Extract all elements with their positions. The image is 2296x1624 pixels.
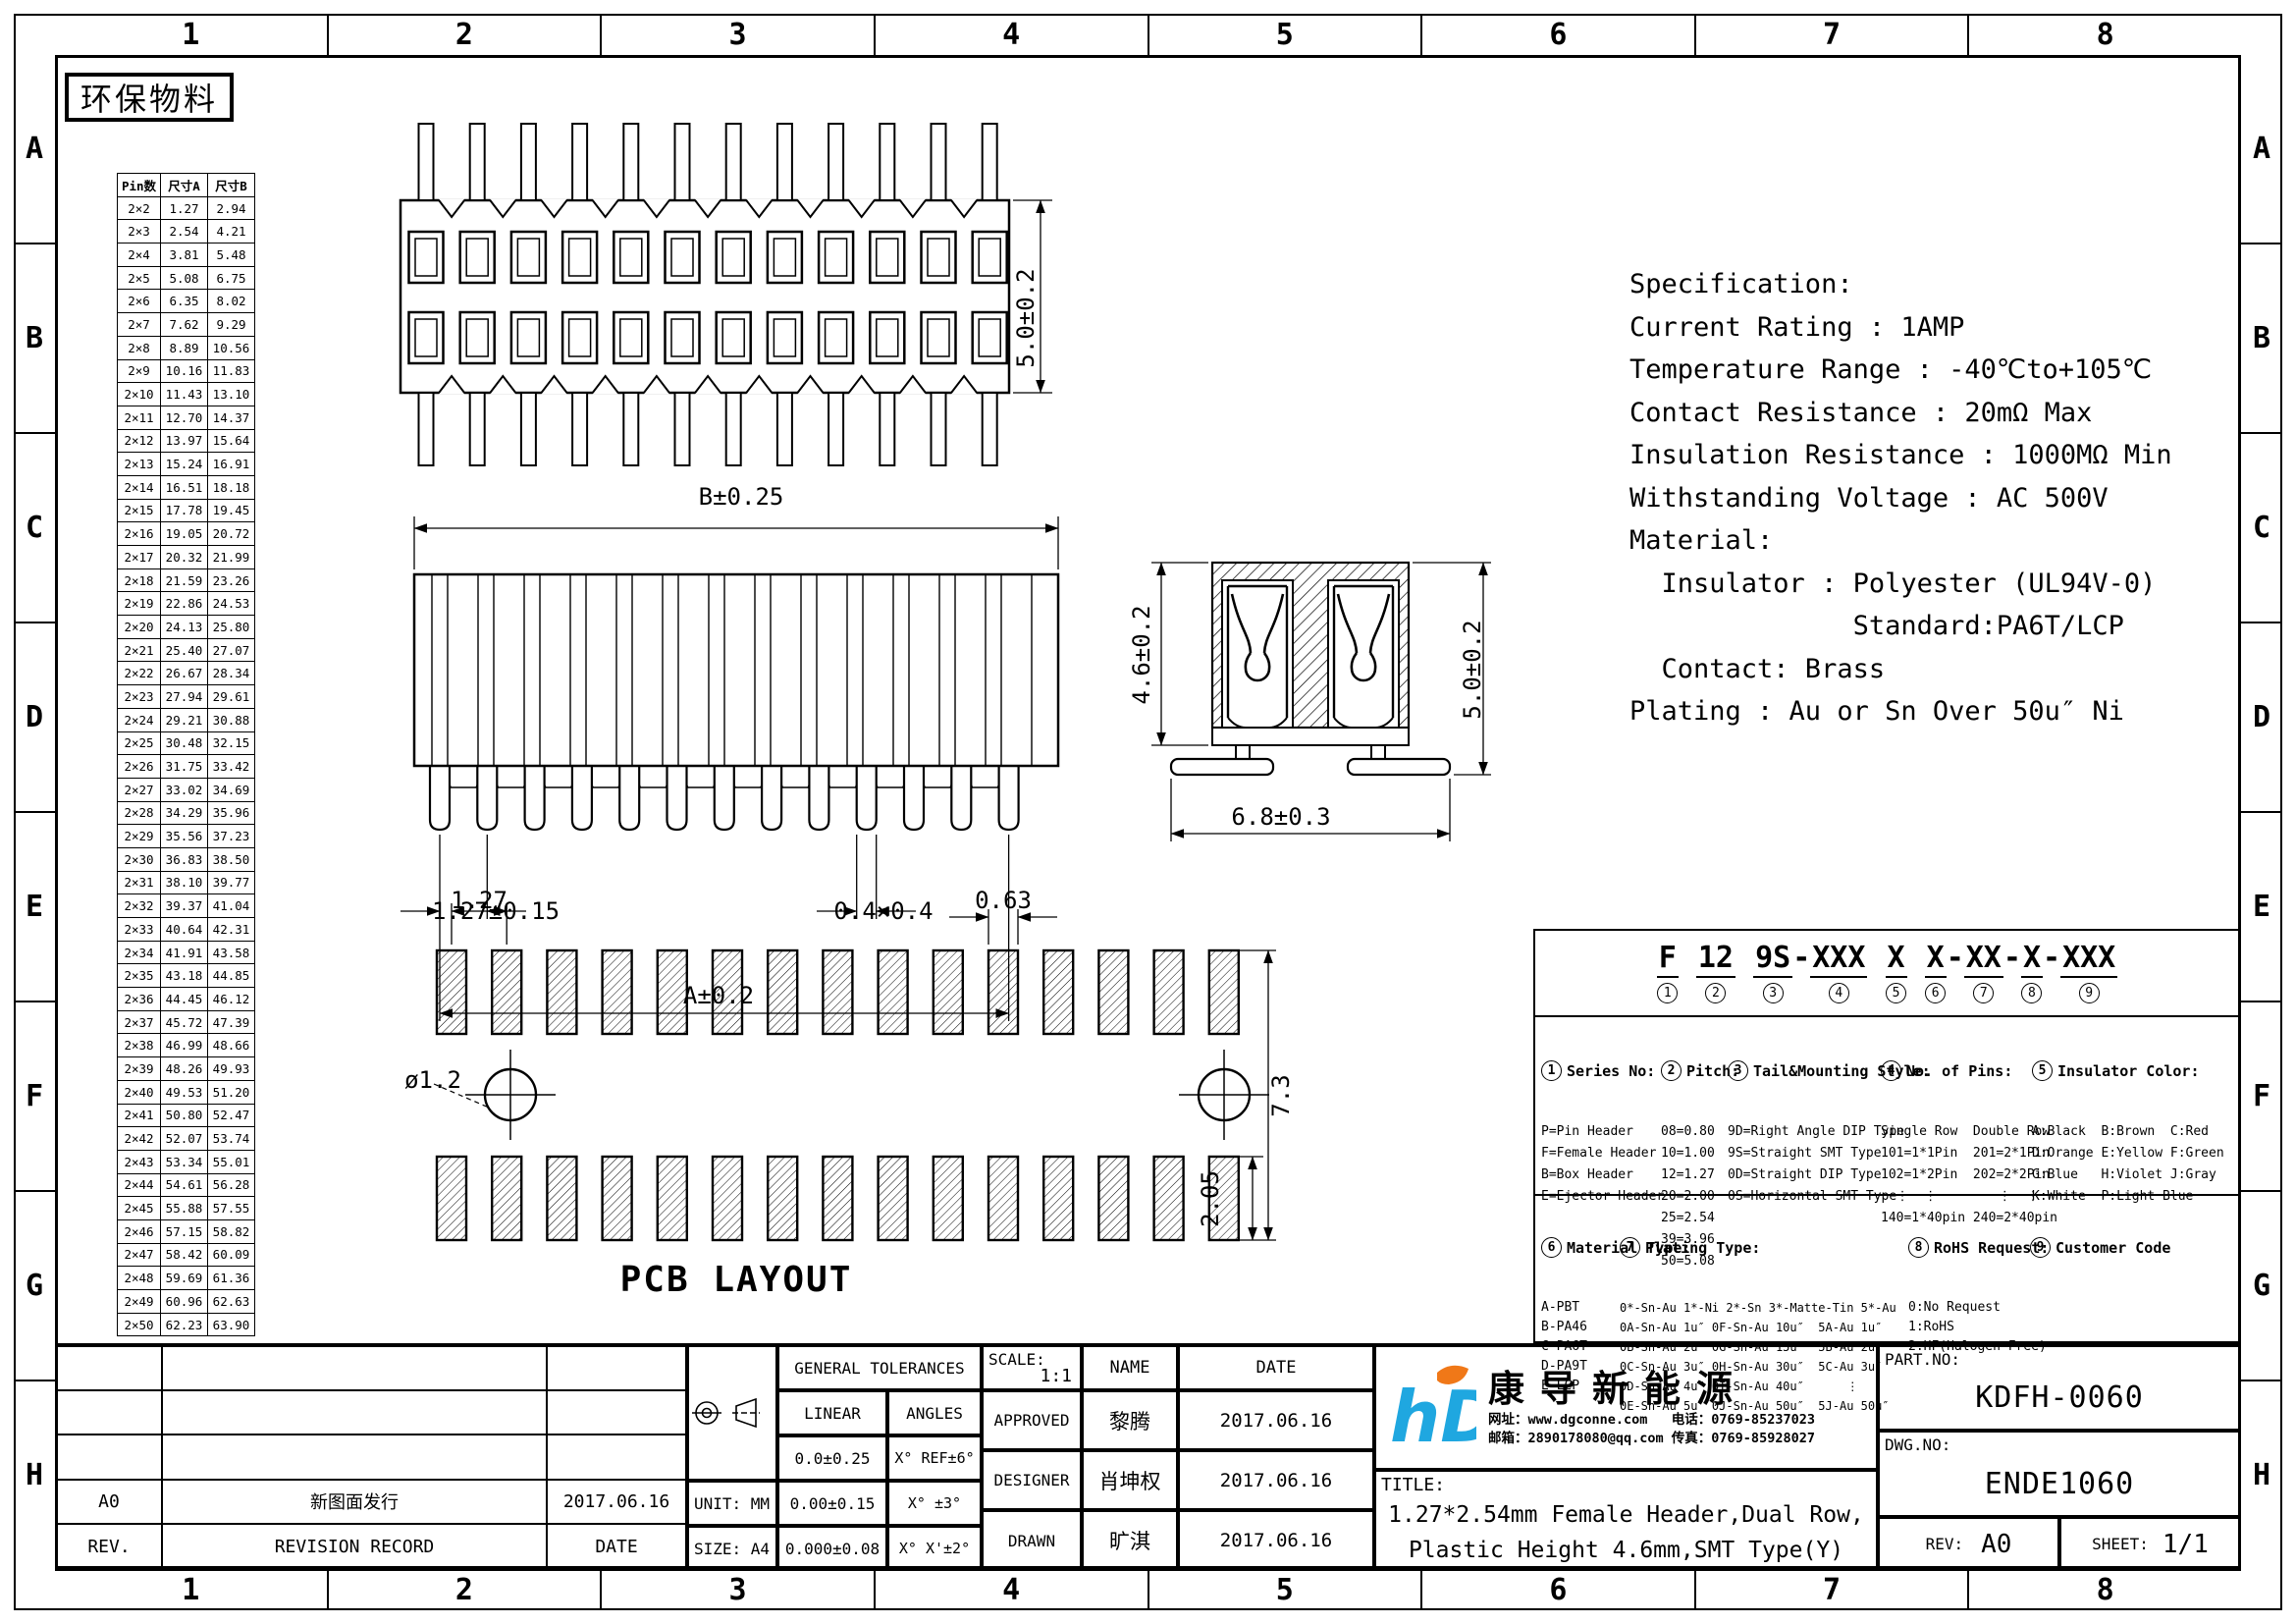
zone-label-H: H bbox=[14, 1380, 55, 1569]
table-cell: 62.23 bbox=[161, 1313, 208, 1336]
unit-cell: UNIT: MM bbox=[687, 1481, 777, 1526]
circled-number: 1 bbox=[1657, 983, 1678, 1003]
code-segment: XXX9 bbox=[2060, 941, 2117, 1003]
table-cell: 56.28 bbox=[208, 1173, 255, 1197]
table-cell: 2×48 bbox=[118, 1267, 161, 1290]
table-cell: 2×17 bbox=[118, 546, 161, 569]
code-segment: X6 bbox=[1925, 941, 1947, 1003]
code-separator: - bbox=[1947, 941, 1964, 976]
designer-date: 2017.06.16 bbox=[1178, 1450, 1374, 1510]
table-cell: 2×38 bbox=[118, 1034, 161, 1057]
revision-cell: DATE bbox=[548, 1525, 685, 1569]
table-cell: 2×47 bbox=[118, 1243, 161, 1267]
table-cell: 2×39 bbox=[118, 1057, 161, 1081]
table-cell: 6.75 bbox=[208, 266, 255, 290]
table-cell: 63.90 bbox=[208, 1313, 255, 1336]
table-cell: 30.48 bbox=[161, 731, 208, 755]
scale-value: 1:1 bbox=[1040, 1366, 1072, 1386]
table-cell: 46.99 bbox=[161, 1034, 208, 1057]
table-row: 2×4859.6961.36 bbox=[118, 1267, 255, 1290]
table-row: 2×3543.1844.85 bbox=[118, 964, 255, 988]
table-row: 2×2024.1325.80 bbox=[118, 616, 255, 639]
table-cell: 34.69 bbox=[208, 778, 255, 801]
list-item: F=Female Header bbox=[1541, 1143, 1664, 1164]
approved-date: 2017.06.16 bbox=[1178, 1390, 1374, 1450]
table-cell: 2×30 bbox=[118, 847, 161, 871]
connector-base-seat bbox=[1212, 728, 1409, 745]
tolerance-linear-1: 0.0±0.25 bbox=[777, 1435, 887, 1481]
revision-cell: A0 bbox=[57, 1481, 163, 1525]
divider bbox=[1535, 1015, 2239, 1017]
table-cell: 2×46 bbox=[118, 1219, 161, 1243]
table-cell: 52.07 bbox=[161, 1127, 208, 1151]
table-row: 2×4252.0753.74 bbox=[118, 1127, 255, 1151]
table-cell: 2×22 bbox=[118, 662, 161, 685]
drawn-label: DRAWN bbox=[982, 1510, 1082, 1571]
circled-number: 6 bbox=[1541, 1237, 1562, 1258]
table-cell: 48.26 bbox=[161, 1057, 208, 1081]
circled-number: 4 bbox=[1881, 1060, 1901, 1081]
specification-block: Specification:Current Rating : 1AMPTempe… bbox=[1629, 263, 2172, 733]
zone-label-7: 7 bbox=[1694, 14, 1968, 55]
dim-label-pcb-hole: ø1.2 bbox=[389, 1066, 477, 1094]
circled-number: 9 bbox=[2030, 1237, 2051, 1258]
dwg-no-value: ENDE1060 bbox=[1985, 1467, 2135, 1501]
drawing-title-cell: TITLE: 1.27*2.54mm Female Header,Dual Ro… bbox=[1374, 1470, 1878, 1571]
circled-number: 6 bbox=[1925, 983, 1946, 1003]
table-cell: 46.12 bbox=[208, 988, 255, 1011]
smt-feet bbox=[1171, 745, 1450, 775]
table-cell: 44.85 bbox=[208, 964, 255, 988]
table-cell: 2×50 bbox=[118, 1313, 161, 1336]
table-cell: 2×33 bbox=[118, 918, 161, 942]
table-row: 2×4657.1558.82 bbox=[118, 1219, 255, 1243]
table-cell: 55.01 bbox=[208, 1150, 255, 1173]
designer-label: DESIGNER bbox=[982, 1450, 1082, 1510]
date-header: DATE bbox=[1178, 1345, 1374, 1390]
table-cell: 3.81 bbox=[161, 244, 208, 267]
table-cell: 2×12 bbox=[118, 429, 161, 453]
table-cell: 2×42 bbox=[118, 1127, 161, 1151]
circled-number: 3 bbox=[1728, 1060, 1748, 1081]
table-cell: 2×4 bbox=[118, 244, 161, 267]
table-cell: 27.07 bbox=[208, 638, 255, 662]
table-cell: 2×43 bbox=[118, 1150, 161, 1173]
code-separator bbox=[1735, 941, 1753, 976]
zone-band-left: ABCDEFGH bbox=[14, 55, 55, 1569]
table-cell: 8.89 bbox=[161, 336, 208, 359]
table-row: 2×1315.2416.91 bbox=[118, 453, 255, 476]
list-item: Specification: bbox=[1629, 263, 2172, 306]
table-row: 2×1011.4313.10 bbox=[118, 383, 255, 406]
zone-label-2: 2 bbox=[327, 14, 601, 55]
table-cell: 7.62 bbox=[161, 313, 208, 337]
logo-text: hD bbox=[1390, 1376, 1476, 1457]
table-row: 2×1619.0520.72 bbox=[118, 522, 255, 546]
dwg-no-label: DWG.NO: bbox=[1885, 1435, 1950, 1454]
dim-label-foot-span: 6.8±0.3 bbox=[1217, 803, 1345, 831]
zone-label-E: E bbox=[2241, 811, 2282, 1001]
table-cell: 2×49 bbox=[118, 1290, 161, 1314]
table-cell: 49.53 bbox=[161, 1080, 208, 1104]
revision-cell: REV. bbox=[57, 1525, 163, 1569]
code-segment: F1 bbox=[1657, 941, 1679, 1003]
list-item: 0A-Sn-Au 1u″ 0F-Sn-Au 10u″ 5A-Au 1u″ bbox=[1620, 1318, 1896, 1337]
circled-number: 4 bbox=[1829, 983, 1849, 1003]
table-cell: 14.37 bbox=[208, 406, 255, 429]
table-cell: 9.29 bbox=[208, 313, 255, 337]
dim-label-pcb-row-span: 7.3 bbox=[1267, 1032, 1295, 1160]
table-row: 2×2935.5637.23 bbox=[118, 825, 255, 848]
table-cell: 21.99 bbox=[208, 546, 255, 569]
table-cell: 2×20 bbox=[118, 616, 161, 639]
list-item: 1:RoHS bbox=[1908, 1318, 2049, 1337]
table-cell: 2×35 bbox=[118, 964, 161, 988]
code-separator bbox=[1907, 941, 1925, 976]
table-row: 2×4454.6156.28 bbox=[118, 1173, 255, 1197]
table-cell: 52.47 bbox=[208, 1104, 255, 1127]
code-separator: - bbox=[1792, 941, 1810, 976]
table-cell: 2×2 bbox=[118, 196, 161, 220]
table-cell: 44.45 bbox=[161, 988, 208, 1011]
drawing-sheet: 12345678 12345678 ABCDEFGH ABCDEFGH 环保物料… bbox=[0, 0, 2296, 1624]
list-item: Contact: Brass bbox=[1629, 648, 2172, 691]
table-cell: 35.96 bbox=[208, 801, 255, 825]
table-cell: 2.94 bbox=[208, 196, 255, 220]
list-item: Withstanding Voltage : AC 500V bbox=[1629, 477, 2172, 520]
dwg-no-cell: DWG.NO: ENDE1060 bbox=[1878, 1431, 2241, 1517]
name-header: NAME bbox=[1082, 1345, 1178, 1390]
zone-label-H: H bbox=[2241, 1380, 2282, 1569]
table-cell: 53.74 bbox=[208, 1127, 255, 1151]
eco-material-stamp: 环保物料 bbox=[65, 73, 234, 122]
table-cell: 58.42 bbox=[161, 1243, 208, 1267]
sheet-value: 1/1 bbox=[2163, 1530, 2209, 1559]
zone-label-5: 5 bbox=[1148, 14, 1421, 55]
list-item: G:Blue H:Violet J:Gray bbox=[2032, 1164, 2224, 1186]
part-no-cell: PART.NO: KDFH-0060 bbox=[1878, 1345, 2241, 1431]
connector-top-view bbox=[391, 110, 1078, 475]
zone-label-6: 6 bbox=[1420, 14, 1694, 55]
table-cell: 43.18 bbox=[161, 964, 208, 988]
table-cell: 2×40 bbox=[118, 1080, 161, 1104]
zone-label-G: G bbox=[2241, 1190, 2282, 1380]
table-row: 2×3239.3741.04 bbox=[118, 894, 255, 918]
table-cell: 2×29 bbox=[118, 825, 161, 848]
table-cell: 12.70 bbox=[161, 406, 208, 429]
circled-number: 2 bbox=[1661, 1060, 1682, 1081]
table-row: 2×4960.9662.63 bbox=[118, 1290, 255, 1314]
table-cell: 26.67 bbox=[161, 662, 208, 685]
table-row: 2×3036.8338.50 bbox=[118, 847, 255, 871]
zone-label-7: 7 bbox=[1694, 1569, 1968, 1610]
table-row: 2×4758.4260.09 bbox=[118, 1243, 255, 1267]
sheet-label: SHEET: bbox=[2092, 1535, 2149, 1553]
list-item: D:Orange E:Yellow F:Green bbox=[2032, 1143, 2224, 1164]
circled-number: 7 bbox=[1620, 1237, 1640, 1258]
scale-cell: SCALE: 1:1 bbox=[982, 1345, 1082, 1390]
table-cell: 47.39 bbox=[208, 1010, 255, 1034]
table-cell: 27.94 bbox=[161, 685, 208, 709]
revision-cell: 2017.06.16 bbox=[548, 1481, 685, 1525]
zone-label-6: 6 bbox=[1420, 1569, 1694, 1610]
table-cell: 2×32 bbox=[118, 894, 161, 918]
list-item: P=Pin Header bbox=[1541, 1121, 1664, 1143]
zone-label-1: 1 bbox=[55, 14, 327, 55]
zone-label-8: 8 bbox=[1967, 1569, 2241, 1610]
table-cell: 55.88 bbox=[161, 1197, 208, 1220]
table-cell: 2×14 bbox=[118, 475, 161, 499]
table-cell: 1.27 bbox=[161, 196, 208, 220]
table-row: 2×2733.0234.69 bbox=[118, 778, 255, 801]
table-cell: 58.82 bbox=[208, 1219, 255, 1243]
zone-label-F: F bbox=[2241, 1001, 2282, 1190]
table-row: 2×3340.6442.31 bbox=[118, 918, 255, 942]
dim-label-overall-height: 5.0±0.2 bbox=[1459, 606, 1486, 733]
company-logo: hD bbox=[1386, 1359, 1476, 1457]
rev-cell: REV: A0 bbox=[1878, 1517, 2059, 1571]
code-separator: - bbox=[2003, 941, 2021, 976]
table-cell: 31.75 bbox=[161, 755, 208, 779]
list-item: Contact Resistance : 20mΩ Max bbox=[1629, 392, 2172, 435]
pcb-layout-caption: PCB LAYOUT bbox=[545, 1260, 928, 1300]
approved-name: 黎腾 bbox=[1082, 1390, 1178, 1450]
table-cell: 2×45 bbox=[118, 1197, 161, 1220]
table-cell: 60.09 bbox=[208, 1243, 255, 1267]
revision-cell: 新图面发行 bbox=[163, 1481, 548, 1525]
table-cell: 13.97 bbox=[161, 429, 208, 453]
code-segment: XX7 bbox=[1964, 941, 2003, 1003]
dim-label-insulator-height: 4.6±0.2 bbox=[1128, 591, 1155, 719]
list-item: 0*-Sn-Au 1*-Ni 2*-Sn 3*-Matte-Tin 5*-Au bbox=[1620, 1298, 1896, 1318]
code-separator bbox=[1679, 941, 1696, 976]
table-cell: 2×41 bbox=[118, 1104, 161, 1127]
company-contact-line-1: 网址：www.dgconne.com 电话：0769-85237023 bbox=[1488, 1411, 1815, 1430]
title-label: TITLE: bbox=[1381, 1475, 1445, 1495]
table-row: 2×3138.1039.77 bbox=[118, 871, 255, 894]
table-row: 2×66.358.02 bbox=[118, 290, 255, 313]
table-cell: 11.83 bbox=[208, 359, 255, 383]
table-row: 2×1720.3221.99 bbox=[118, 546, 255, 569]
table-row: 2×2327.9429.61 bbox=[118, 685, 255, 709]
list-item: Temperature Range : -40℃to+105℃ bbox=[1629, 349, 2172, 392]
table-cell: 15.24 bbox=[161, 453, 208, 476]
table-cell: 41.04 bbox=[208, 894, 255, 918]
table-cell: 29.21 bbox=[161, 708, 208, 731]
table-row: 2×3948.2649.93 bbox=[118, 1057, 255, 1081]
table-row: 2×3846.9948.66 bbox=[118, 1034, 255, 1057]
table-cell: 34.29 bbox=[161, 801, 208, 825]
table-cell: 20.72 bbox=[208, 522, 255, 546]
list-item: Current Rating : 1AMP bbox=[1629, 306, 2172, 350]
table-cell: 35.56 bbox=[161, 825, 208, 848]
table-cell: 2×25 bbox=[118, 731, 161, 755]
table-row: 2×4049.5351.20 bbox=[118, 1080, 255, 1104]
table-cell: 5.48 bbox=[208, 244, 255, 267]
revision-cell bbox=[548, 1347, 685, 1391]
table-cell: 2×15 bbox=[118, 499, 161, 522]
company-contact-line-2: 邮箱：2890178080@qq.com 传真：0769-85928027 bbox=[1488, 1430, 1815, 1448]
title-block: A0新图面发行2017.06.16REV.REVISION RECORDDATE… bbox=[55, 1343, 2241, 1569]
table-row: 2×3745.7247.39 bbox=[118, 1010, 255, 1034]
table-cell: 2×10 bbox=[118, 383, 161, 406]
table-cell: 17.78 bbox=[161, 499, 208, 522]
table-cell: 36.83 bbox=[161, 847, 208, 871]
table-row: 2×77.629.29 bbox=[118, 313, 255, 337]
table-cell: 51.20 bbox=[208, 1080, 255, 1104]
table-cell: 48.66 bbox=[208, 1034, 255, 1057]
table-cell: 33.42 bbox=[208, 755, 255, 779]
code-segment: X5 bbox=[1886, 941, 1907, 1003]
table-cell: 6.35 bbox=[161, 290, 208, 313]
table-header-row: Pin数 尺寸A 尺寸B bbox=[118, 174, 255, 197]
table-row: 2×2631.7533.42 bbox=[118, 755, 255, 779]
zone-label-B: B bbox=[2241, 243, 2282, 432]
part-no-label: PART.NO: bbox=[1885, 1350, 1960, 1369]
table-cell: 2×37 bbox=[118, 1010, 161, 1034]
table-cell: 49.93 bbox=[208, 1057, 255, 1081]
company-name: 康导新能源 bbox=[1488, 1368, 1815, 1411]
table-cell: 32.15 bbox=[208, 731, 255, 755]
table-row: 2×910.1611.83 bbox=[118, 359, 255, 383]
table-cell: 24.53 bbox=[208, 592, 255, 616]
table-row: 2×4555.8857.55 bbox=[118, 1197, 255, 1220]
zone-label-D: D bbox=[2241, 622, 2282, 811]
revision-cell bbox=[548, 1435, 685, 1480]
list-item: 0:No Request bbox=[1908, 1298, 2049, 1318]
revision-cell bbox=[163, 1347, 548, 1391]
table-cell: 40.64 bbox=[161, 918, 208, 942]
revision-cell bbox=[57, 1347, 163, 1391]
table-cell: 2×36 bbox=[118, 988, 161, 1011]
part-no-value: KDFH-0060 bbox=[1975, 1380, 2144, 1415]
zone-label-C: C bbox=[2241, 432, 2282, 622]
list-item: Material: bbox=[1629, 519, 2172, 563]
list-item: 1.27*2.54mm Female Header,Dual Row, bbox=[1376, 1497, 1876, 1533]
part-number-legend-box: F1 122 9S3-XXX4 X5 X6-XX7-X8-XXX9 1Serie… bbox=[1533, 929, 2241, 1343]
table-cell: 2.54 bbox=[161, 220, 208, 244]
sheet-cell: SHEET: 1/1 bbox=[2059, 1517, 2241, 1571]
table-cell: 39.37 bbox=[161, 894, 208, 918]
list-item: Standard:PA6T/LCP bbox=[1629, 605, 2172, 648]
table-cell: 2×13 bbox=[118, 453, 161, 476]
list-item: Insulation Resistance : 1000MΩ Min bbox=[1629, 434, 2172, 477]
table-row: 2×32.544.21 bbox=[118, 220, 255, 244]
table-row: 2×2530.4832.15 bbox=[118, 731, 255, 755]
table-row: 2×5062.2363.90 bbox=[118, 1313, 255, 1336]
tolerance-angle-1: X° REF±6° bbox=[887, 1435, 982, 1481]
circled-number: 3 bbox=[1763, 983, 1784, 1003]
mount-hole-crosshairs bbox=[434, 1050, 1269, 1140]
code-segment: 122 bbox=[1696, 941, 1735, 1003]
table-row: 2×3644.4546.12 bbox=[118, 988, 255, 1011]
table-cell: 39.77 bbox=[208, 871, 255, 894]
circled-number: 5 bbox=[2032, 1060, 2053, 1081]
designer-name: 肖坤权 bbox=[1082, 1450, 1178, 1510]
table-cell: 2×5 bbox=[118, 266, 161, 290]
code-segment: XXX4 bbox=[1810, 941, 1867, 1003]
company-logo-cell: hD 康导新能源 网址：www.dgconne.com 电话：0769-8523… bbox=[1374, 1345, 1878, 1470]
zone-label-2: 2 bbox=[327, 1569, 601, 1610]
table-cell: 4.21 bbox=[208, 220, 255, 244]
table-row: 2×1416.5118.18 bbox=[118, 475, 255, 499]
scale-label: SCALE: bbox=[988, 1350, 1045, 1369]
table-row: 2×88.8910.56 bbox=[118, 336, 255, 359]
table-row: 2×4150.8052.47 bbox=[118, 1104, 255, 1127]
divider bbox=[1535, 1194, 2239, 1196]
list-item: A:Black B:Brown C:Red bbox=[2032, 1121, 2224, 1143]
table-cell: 62.63 bbox=[208, 1290, 255, 1314]
code-segment: X8 bbox=[2021, 941, 2043, 1003]
circled-number: 7 bbox=[1973, 983, 1994, 1003]
code-separator: - bbox=[2043, 941, 2060, 976]
table-cell: 2×24 bbox=[118, 708, 161, 731]
zone-label-A: A bbox=[2241, 55, 2282, 243]
table-cell: 19.45 bbox=[208, 499, 255, 522]
table-cell: 30.88 bbox=[208, 708, 255, 731]
dim-label-body-width: B±0.25 bbox=[677, 483, 805, 511]
zone-label-F: F bbox=[14, 1001, 55, 1190]
zone-label-4: 4 bbox=[874, 14, 1148, 55]
zone-label-D: D bbox=[14, 622, 55, 811]
table-cell: 28.34 bbox=[208, 662, 255, 685]
table-cell: 53.34 bbox=[161, 1150, 208, 1173]
table-cell: 25.40 bbox=[161, 638, 208, 662]
zone-label-A: A bbox=[14, 55, 55, 243]
table-cell: 11.43 bbox=[161, 383, 208, 406]
circled-number: 9 bbox=[2079, 983, 2100, 1003]
table-cell: 42.31 bbox=[208, 918, 255, 942]
list-item: Plating : Au or Sn Over 50u″ Ni bbox=[1629, 690, 2172, 733]
table-cell: 41.91 bbox=[161, 941, 208, 964]
connector-body-front-view bbox=[414, 574, 1058, 766]
zone-band-top: 12345678 bbox=[55, 14, 2241, 55]
table-cell: 59.69 bbox=[161, 1267, 208, 1290]
rev-value: A0 bbox=[1981, 1530, 2011, 1559]
col-header-dim-a: 尺寸A bbox=[161, 174, 208, 197]
table-cell: 57.15 bbox=[161, 1219, 208, 1243]
table-cell: 19.05 bbox=[161, 522, 208, 546]
table-row: 2×1517.7819.45 bbox=[118, 499, 255, 522]
table-cell: 15.64 bbox=[208, 429, 255, 453]
table-cell: 2×11 bbox=[118, 406, 161, 429]
list-item: Single Row Double Row bbox=[1881, 1121, 2057, 1143]
revision-cell bbox=[163, 1391, 548, 1435]
tolerance-angle-2: X° ±3° bbox=[887, 1481, 982, 1526]
table-row: 2×1821.5923.26 bbox=[118, 568, 255, 592]
table-cell: 16.51 bbox=[161, 475, 208, 499]
list-item: 101=1*1Pin 201=2*1Pin bbox=[1881, 1143, 2057, 1164]
revision-cell bbox=[163, 1435, 548, 1480]
drawn-name: 旷淇 bbox=[1082, 1510, 1178, 1571]
circled-number: 2 bbox=[1705, 983, 1726, 1003]
table-cell: 2×3 bbox=[118, 220, 161, 244]
zone-label-4: 4 bbox=[874, 1569, 1148, 1610]
angles-header: ANGLES bbox=[887, 1390, 982, 1435]
tolerance-angle-3: X° X'±2° bbox=[887, 1526, 982, 1571]
zone-label-5: 5 bbox=[1148, 1569, 1421, 1610]
zone-band-bottom: 12345678 bbox=[55, 1569, 2241, 1610]
table-cell: 43.58 bbox=[208, 941, 255, 964]
table-cell: 5.08 bbox=[161, 266, 208, 290]
projection-symbol-cell bbox=[687, 1345, 777, 1481]
table-cell: 2×9 bbox=[118, 359, 161, 383]
table-cell: 18.18 bbox=[208, 475, 255, 499]
table-cell: 61.36 bbox=[208, 1267, 255, 1290]
table-cell: 21.59 bbox=[161, 568, 208, 592]
table-cell: 50.80 bbox=[161, 1104, 208, 1127]
zone-label-1: 1 bbox=[55, 1569, 327, 1610]
